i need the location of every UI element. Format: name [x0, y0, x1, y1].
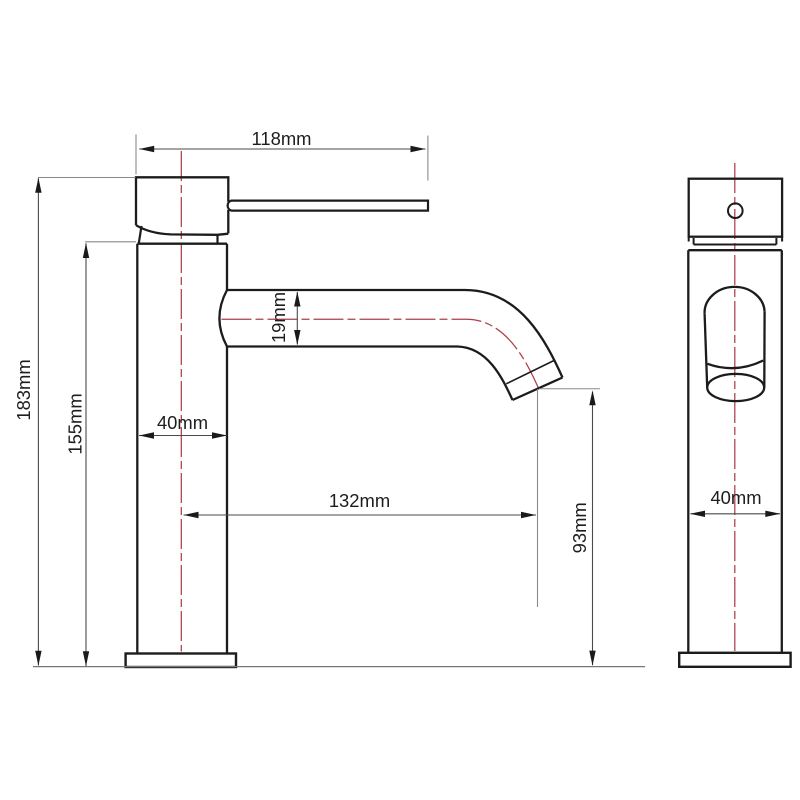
svg-text:93mm: 93mm — [569, 502, 590, 553]
svg-text:118mm: 118mm — [252, 128, 312, 149]
svg-text:40mm: 40mm — [710, 487, 761, 508]
svg-text:40mm: 40mm — [157, 412, 208, 433]
svg-text:132mm: 132mm — [329, 490, 390, 511]
svg-text:155mm: 155mm — [64, 393, 85, 454]
svg-text:183mm: 183mm — [13, 359, 34, 420]
svg-text:19mm: 19mm — [268, 292, 289, 343]
